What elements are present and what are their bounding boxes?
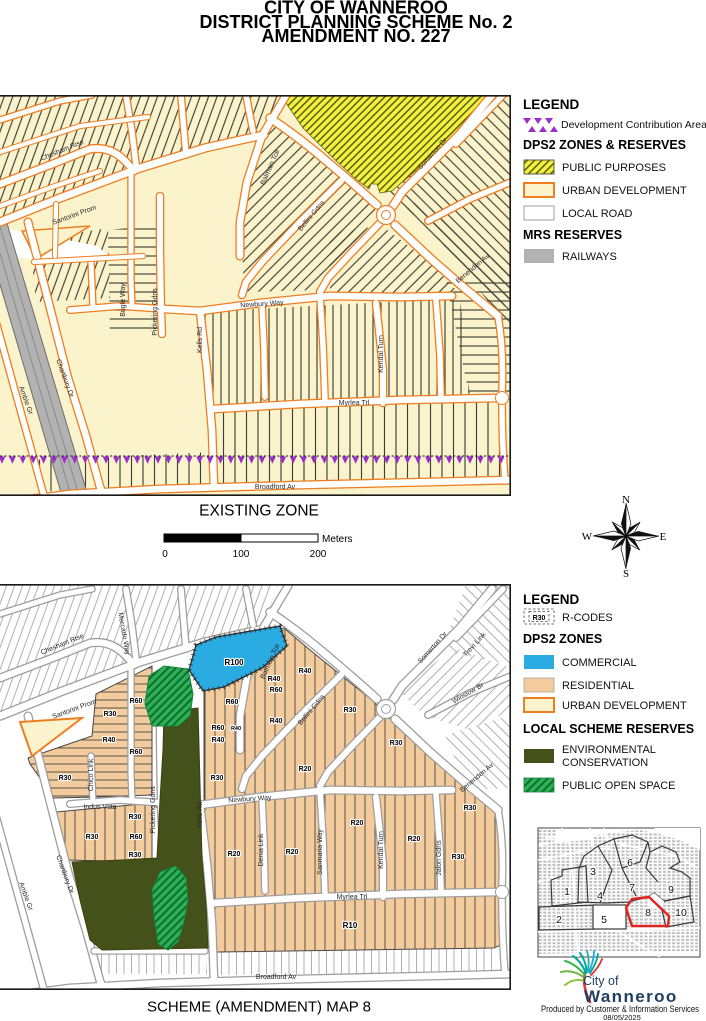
- svg-text:R40: R40: [231, 726, 241, 732]
- svg-text:Kendal Turn: Kendal Turn: [378, 335, 385, 373]
- svg-text:LEGEND: LEGEND: [523, 97, 580, 112]
- svg-text:100: 100: [233, 549, 250, 560]
- svg-text:Pickering Gdns: Pickering Gdns: [152, 288, 159, 336]
- svg-text:AMENDMENT NO. 227: AMENDMENT NO. 227: [261, 26, 450, 46]
- svg-text:SCHEME (AMENDMENT) MAP 8: SCHEME (AMENDMENT) MAP 8: [147, 999, 371, 1016]
- svg-text:R40: R40: [103, 737, 116, 744]
- svg-text:08/05/2025: 08/05/2025: [603, 1013, 641, 1021]
- svg-text:R40: R40: [299, 668, 312, 675]
- svg-text:R30: R30: [59, 775, 72, 782]
- svg-text:R20: R20: [299, 766, 312, 773]
- svg-text:4: 4: [597, 890, 603, 902]
- svg-text:R30: R30: [104, 711, 117, 718]
- svg-text:R40: R40: [212, 737, 225, 744]
- svg-text:Sanmaria Way: Sanmaria Way: [317, 829, 324, 875]
- svg-text:R-CODES: R-CODES: [562, 612, 613, 624]
- svg-text:COMMERCIAL: COMMERCIAL: [562, 657, 637, 669]
- svg-text:Broadford Av: Broadford Av: [255, 484, 296, 491]
- svg-text:2: 2: [556, 914, 562, 926]
- svg-text:R60: R60: [130, 698, 143, 705]
- svg-text:S: S: [623, 568, 629, 580]
- svg-text:5: 5: [601, 914, 607, 926]
- svg-text:DPS2 ZONES & RESERVES: DPS2 ZONES & RESERVES: [523, 138, 686, 152]
- svg-text:1: 1: [564, 886, 570, 898]
- svg-text:R60: R60: [130, 749, 143, 756]
- svg-text:URBAN DEVELOPMENT: URBAN DEVELOPMENT: [562, 185, 687, 197]
- svg-text:E: E: [660, 531, 667, 543]
- svg-text:R60: R60: [226, 699, 239, 706]
- svg-text:URBAN DEVELOPMENT: URBAN DEVELOPMENT: [562, 700, 687, 712]
- svg-text:Kendal Turn: Kendal Turn: [378, 831, 385, 869]
- svg-text:Myrlea Trl: Myrlea Trl: [339, 400, 370, 407]
- svg-text:Denia Link: Denia Link: [258, 833, 265, 867]
- svg-text:Meters: Meters: [322, 534, 353, 545]
- svg-text:R60: R60: [270, 687, 283, 694]
- svg-text:Indus Vsta: Indus Vsta: [83, 804, 116, 811]
- svg-text:R30: R30: [129, 852, 142, 859]
- svg-text:R20: R20: [286, 849, 299, 856]
- svg-text:W: W: [582, 531, 593, 543]
- svg-text:R30: R30: [390, 740, 403, 747]
- svg-text:Myrlea Trl: Myrlea Trl: [337, 894, 368, 901]
- svg-text:Broadford Av: Broadford Av: [256, 974, 297, 981]
- svg-text:Development Contribution Area: Development Contribution Area: [561, 119, 706, 131]
- svg-text:R30: R30: [129, 814, 142, 821]
- svg-text:Bugle Way: Bugle Way: [120, 283, 127, 317]
- svg-text:PUBLIC OPEN SPACE: PUBLIC OPEN SPACE: [562, 780, 676, 792]
- svg-text:Pickering Gdns: Pickering Gdns: [150, 786, 157, 834]
- svg-text:EXISTING ZONE: EXISTING ZONE: [199, 503, 319, 520]
- svg-text:RAILWAYS: RAILWAYS: [562, 251, 617, 263]
- svg-text:Kells Rd: Kells Rd: [197, 327, 204, 353]
- svg-text:0: 0: [162, 549, 168, 560]
- svg-text:200: 200: [310, 549, 327, 560]
- svg-text:N: N: [622, 494, 630, 506]
- svg-text:R40: R40: [270, 718, 283, 725]
- svg-text:R30: R30: [452, 854, 465, 861]
- svg-text:8: 8: [645, 907, 651, 919]
- svg-text:Jalon Gdns: Jalon Gdns: [436, 840, 443, 876]
- svg-text:10: 10: [675, 907, 687, 919]
- svg-text:R20: R20: [408, 836, 421, 843]
- svg-text:Chico Link: Chico Link: [88, 758, 95, 791]
- svg-text:R20: R20: [228, 851, 241, 858]
- svg-text:Kells Rd: Kells Rd: [197, 802, 204, 828]
- svg-text:City of: City of: [583, 974, 619, 988]
- svg-text:RESIDENTIAL: RESIDENTIAL: [562, 680, 634, 692]
- svg-text:3: 3: [590, 866, 596, 878]
- svg-text:R20: R20: [351, 820, 364, 827]
- svg-text:CONSERVATION: CONSERVATION: [562, 757, 648, 769]
- svg-text:R100: R100: [224, 658, 244, 667]
- svg-text:R30: R30: [344, 707, 357, 714]
- svg-text:9: 9: [668, 884, 674, 896]
- svg-text:R10: R10: [343, 921, 358, 930]
- svg-text:MRS RESERVES: MRS RESERVES: [523, 228, 622, 242]
- svg-text:6: 6: [627, 857, 633, 869]
- svg-text:R30: R30: [533, 615, 546, 622]
- svg-text:R30: R30: [211, 775, 224, 782]
- svg-text:LOCAL SCHEME RESERVES: LOCAL SCHEME RESERVES: [523, 722, 694, 736]
- svg-text:ENVIRONMENTAL: ENVIRONMENTAL: [562, 744, 656, 756]
- svg-text:R30: R30: [86, 834, 99, 841]
- svg-text:PUBLIC PURPOSES: PUBLIC PURPOSES: [562, 162, 666, 174]
- svg-text:R30: R30: [464, 805, 477, 812]
- svg-text:R60: R60: [130, 834, 143, 841]
- svg-text:LOCAL ROAD: LOCAL ROAD: [562, 208, 633, 220]
- svg-text:LEGEND: LEGEND: [523, 592, 580, 607]
- svg-text:R40: R40: [268, 676, 281, 683]
- svg-text:R60: R60: [212, 725, 225, 732]
- svg-text:DPS2 ZONES: DPS2 ZONES: [523, 632, 602, 646]
- svg-text:7: 7: [629, 882, 635, 894]
